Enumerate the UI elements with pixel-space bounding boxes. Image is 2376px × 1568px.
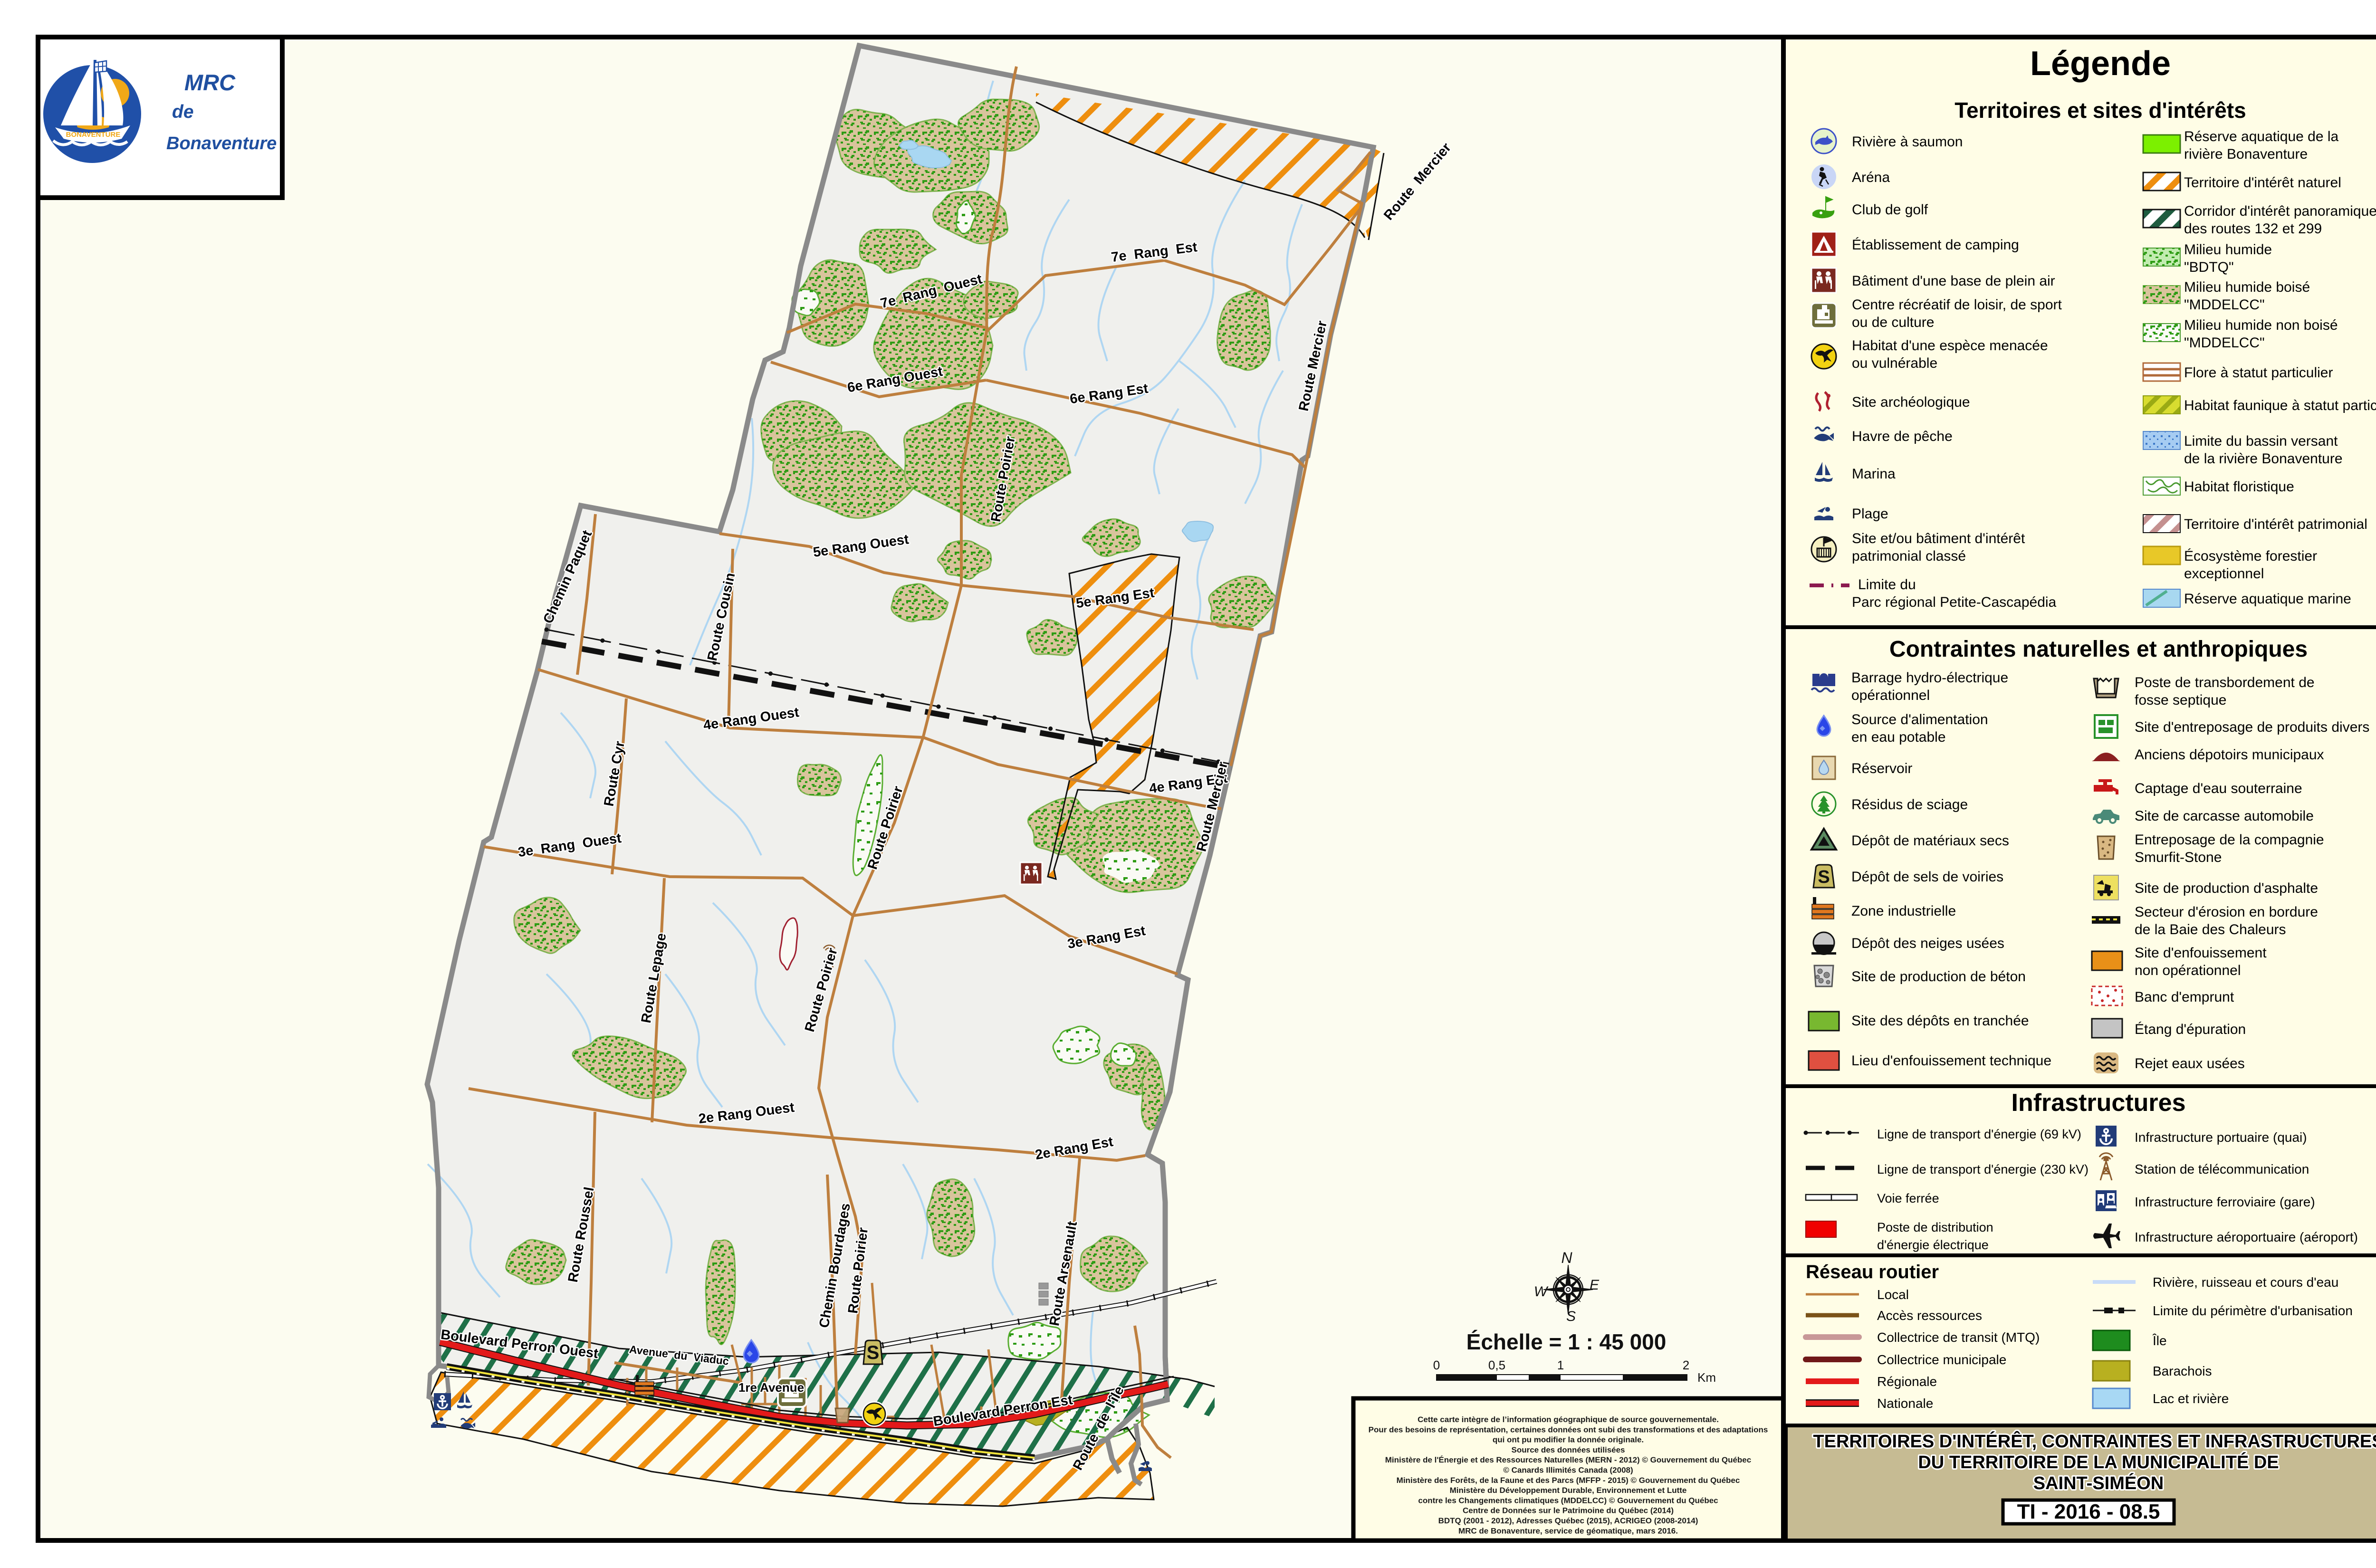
svg-text:Source des données utilisées: Source des données utilisées xyxy=(1511,1445,1625,1454)
svg-text:2: 2 xyxy=(1683,1358,1689,1372)
svg-text:d'énergie électrique: d'énergie électrique xyxy=(1877,1238,1989,1252)
svg-text:Marina: Marina xyxy=(1852,466,1896,482)
svg-text:Entreposage de la compagnie: Entreposage de la compagnie xyxy=(2135,832,2324,848)
svg-text:Havre de pêche: Havre de pêche xyxy=(1852,429,1953,444)
svg-text:exceptionnel: exceptionnel xyxy=(2184,566,2264,582)
svg-text:Infrastructure portuaire (quai: Infrastructure portuaire (quai) xyxy=(2135,1130,2307,1145)
svg-text:DU TERRITOIRE DE LA MUNICIPALI: DU TERRITOIRE DE LA MUNICIPALITÉ DE xyxy=(1918,1452,2279,1472)
svg-text:Lac et rivière: Lac et rivière xyxy=(2153,1391,2229,1406)
svg-text:Milieu humide non boisé: Milieu humide non boisé xyxy=(2184,317,2338,333)
svg-text:Réserve aquatique marine: Réserve aquatique marine xyxy=(2184,591,2351,607)
svg-text:Nationale: Nationale xyxy=(1877,1396,1933,1411)
svg-text:Ligne de transport d'énergie (: Ligne de transport d'énergie (69 kV) xyxy=(1877,1127,2081,1141)
svg-text:Source d'alimentation: Source d'alimentation xyxy=(1851,712,1988,727)
svg-text:Site de production d'asphalte: Site de production d'asphalte xyxy=(2135,880,2318,896)
svg-text:TI - 2016 - 08.5: TI - 2016 - 08.5 xyxy=(2017,1500,2160,1523)
svg-text:Anciens dépotoirs municipaux: Anciens dépotoirs municipaux xyxy=(2135,747,2324,763)
svg-text:Bonaventure: Bonaventure xyxy=(166,134,277,153)
svg-text:Site et/ou bâtiment d'intérêt: Site et/ou bâtiment d'intérêt xyxy=(1852,531,2025,546)
svg-text:Collectrice de transit (MTQ): Collectrice de transit (MTQ) xyxy=(1877,1330,2040,1345)
svg-text:Infrastructures: Infrastructures xyxy=(2012,1089,2186,1117)
svg-text:Résidus de sciage: Résidus de sciage xyxy=(1851,797,1968,813)
svg-text:Poste de transbordement de: Poste de transbordement de xyxy=(2135,675,2315,690)
svg-text:MRC de Bonaventure, service de: MRC de Bonaventure, service de géomatiqu… xyxy=(1458,1526,1678,1535)
svg-text:Parc régional Petite-Cascapédi: Parc régional Petite-Cascapédia xyxy=(1852,594,2057,610)
svg-text:BDTQ (2001 - 2012), Adresses Q: BDTQ (2001 - 2012), Adresses Québec (201… xyxy=(1438,1516,1698,1525)
svg-text:Poste de distribution: Poste de distribution xyxy=(1877,1220,1993,1234)
svg-text:Secteur d'érosion en bordure: Secteur d'érosion en bordure xyxy=(2135,904,2318,920)
svg-text:Écosystème forestier: Écosystème forestier xyxy=(2184,548,2317,564)
svg-text:patrimonial classé: patrimonial classé xyxy=(1852,548,1966,564)
svg-text:Aréna: Aréna xyxy=(1852,170,1890,185)
svg-text:S: S xyxy=(1818,867,1830,887)
svg-text:Échelle = 1 : 45 000: Échelle = 1 : 45 000 xyxy=(1466,1329,1667,1354)
svg-text:Barrage hydro-électrique: Barrage hydro-électrique xyxy=(1851,670,2008,686)
svg-text:1re Avenue: 1re Avenue xyxy=(738,1380,804,1395)
svg-text:1: 1 xyxy=(1557,1358,1564,1372)
svg-text:rivière Bonaventure: rivière Bonaventure xyxy=(2184,146,2308,162)
svg-text:ou vulnérable: ou vulnérable xyxy=(1852,355,1937,371)
svg-text:Smurfit-Stone: Smurfit-Stone xyxy=(2135,850,2222,865)
svg-text:Lieu d'enfouissement technique: Lieu d'enfouissement technique xyxy=(1851,1053,2051,1069)
svg-text:Collectrice municipale: Collectrice municipale xyxy=(1877,1352,2006,1367)
svg-text:S: S xyxy=(867,1342,880,1363)
svg-text:Rivière, ruisseau et cours d'e: Rivière, ruisseau et cours d'eau xyxy=(2153,1275,2338,1290)
svg-text:SAINT-SIMÉON: SAINT-SIMÉON xyxy=(2033,1472,2164,1493)
svg-text:Infrastructure aéroportuaire (: Infrastructure aéroportuaire (aéroport) xyxy=(2135,1230,2358,1244)
svg-text:Site d'enfouissement: Site d'enfouissement xyxy=(2135,945,2267,961)
svg-text:Cette carte intègre de l’infor: Cette carte intègre de l’information géo… xyxy=(1418,1415,1719,1424)
svg-text:E: E xyxy=(1590,1277,1600,1293)
svg-text:"BDTQ": "BDTQ" xyxy=(2184,259,2234,275)
svg-text:Habitat faunique à statut part: Habitat faunique à statut particulier xyxy=(2184,398,2376,413)
svg-text:© Canards Illimités Canada (20: © Canards Illimités Canada (2008) xyxy=(1503,1466,1633,1475)
svg-text:Barachois: Barachois xyxy=(2153,1364,2212,1378)
svg-text:Dépôt de matériaux secs: Dépôt de matériaux secs xyxy=(1851,833,2009,849)
svg-text:Légende: Légende xyxy=(2030,45,2171,83)
svg-text:opérationnel: opérationnel xyxy=(1851,688,1930,703)
svg-text:Captage d'eau souterraine: Captage d'eau souterraine xyxy=(2135,781,2302,796)
svg-text:de la rivière Bonaventure: de la rivière Bonaventure xyxy=(2184,451,2343,467)
svg-text:Ministère de l'Énergie et des: Ministère de l'Énergie et des Ressources… xyxy=(1385,1455,1751,1464)
svg-text:S: S xyxy=(1566,1309,1576,1324)
svg-text:Réseau routier: Réseau routier xyxy=(1806,1262,1939,1282)
svg-text:"MDDELCC": "MDDELCC" xyxy=(2184,335,2265,351)
svg-text:Dépôt des neiges usées: Dépôt des neiges usées xyxy=(1851,936,2004,951)
svg-text:non opérationnel: non opérationnel xyxy=(2135,963,2241,978)
svg-text:Territoire d'intérêt naturel: Territoire d'intérêt naturel xyxy=(2184,175,2341,191)
svg-text:Corridor d'intérêt panoramique: Corridor d'intérêt panoramique xyxy=(2184,203,2376,219)
svg-text:Régionale: Régionale xyxy=(1877,1374,1937,1389)
svg-text:Km: Km xyxy=(1697,1370,1716,1385)
svg-text:Habitat d'une espèce menacée: Habitat d'une espèce menacée xyxy=(1852,338,2048,354)
svg-text:des routes 132 et 299: des routes 132 et 299 xyxy=(2184,221,2322,237)
svg-text:Site de production de béton: Site de production de béton xyxy=(1851,969,2026,985)
svg-text:Site des dépôts en tranchée: Site des dépôts en tranchée xyxy=(1851,1013,2029,1029)
svg-text:Rejet eaux usées: Rejet eaux usées xyxy=(2135,1056,2245,1071)
svg-text:Site d'entreposage de produits: Site d'entreposage de produits divers xyxy=(2135,719,2369,735)
svg-text:Île: Île xyxy=(2152,1333,2167,1348)
svg-text:Ligne de transport d'énergie (: Ligne de transport d'énergie (230 kV) xyxy=(1877,1162,2089,1176)
svg-text:Dépôt de sels de voiries: Dépôt de sels de voiries xyxy=(1851,869,2003,885)
svg-text:Club de golf: Club de golf xyxy=(1852,202,1928,218)
svg-text:Limite du périmètre d'urbanisa: Limite du périmètre d'urbanisation xyxy=(2153,1303,2353,1318)
svg-text:Zone industrielle: Zone industrielle xyxy=(1851,903,1956,919)
svg-text:Banc d'emprunt: Banc d'emprunt xyxy=(2135,989,2234,1005)
svg-text:0: 0 xyxy=(1433,1358,1440,1372)
svg-text:Territoires et sites d'intérêt: Territoires et sites d'intérêts xyxy=(1954,98,2246,123)
svg-text:W: W xyxy=(1534,1284,1549,1300)
svg-text:Habitat floristique: Habitat floristique xyxy=(2184,479,2294,495)
svg-text:BONAVENTURE: BONAVENTURE xyxy=(66,131,121,139)
svg-text:Territoire d'intérêt patrimoni: Territoire d'intérêt patrimonial xyxy=(2184,516,2367,532)
svg-text:Local: Local xyxy=(1877,1287,1909,1302)
svg-text:Milieu humide: Milieu humide xyxy=(2184,242,2272,258)
svg-text:Pour des besoins de représenta: Pour des besoins de représentation, cert… xyxy=(1369,1425,1768,1434)
svg-text:N: N xyxy=(1561,1249,1572,1266)
svg-text:"MDDELCC": "MDDELCC" xyxy=(2184,297,2265,313)
svg-text:TERRITOIRES D'INTÉRÊT, CONTRAI: TERRITOIRES D'INTÉRÊT, CONTRAINTES ET IN… xyxy=(1813,1431,2376,1452)
svg-text:Infrastructure ferroviaire (ga: Infrastructure ferroviaire (gare) xyxy=(2135,1195,2315,1209)
svg-text:Étang d'épuration: Étang d'épuration xyxy=(2135,1022,2246,1037)
svg-text:Bâtiment d'une base de plein a: Bâtiment d'une base de plein air xyxy=(1852,273,2055,289)
svg-text:qui ont pu modifier la donnée: qui ont pu modifier la donnée originale. xyxy=(1493,1435,1644,1444)
svg-text:Milieu humide boisé: Milieu humide boisé xyxy=(2184,279,2310,295)
svg-text:de la Baie des Chaleurs: de la Baie des Chaleurs xyxy=(2135,922,2286,937)
svg-text:Réservoir: Réservoir xyxy=(1851,761,1912,776)
svg-text:Accès ressources: Accès ressources xyxy=(1877,1308,1982,1323)
svg-text:0,5: 0,5 xyxy=(1488,1358,1505,1372)
svg-text:Limite du bassin versant: Limite du bassin versant xyxy=(2184,433,2338,449)
svg-text:ou de culture: ou de culture xyxy=(1852,315,1934,330)
svg-text:de: de xyxy=(172,102,194,122)
svg-text:fosse septique: fosse septique xyxy=(2135,692,2226,708)
svg-text:Voie ferrée: Voie ferrée xyxy=(1877,1191,1939,1205)
svg-text:Plage: Plage xyxy=(1852,506,1888,522)
svg-text:Réserve aquatique de la: Réserve aquatique de la xyxy=(2184,129,2339,144)
svg-text:Établissement de camping: Établissement de camping xyxy=(1852,237,2019,253)
svg-text:Limite du: Limite du xyxy=(1858,577,1916,593)
svg-text:Station de télécommunication: Station de télécommunication xyxy=(2135,1162,2309,1176)
svg-text:Flore à statut particulier: Flore à statut particulier xyxy=(2184,365,2333,381)
svg-text:Site de carcasse automobile: Site de carcasse automobile xyxy=(2135,808,2314,824)
svg-text:Site archéologique: Site archéologique xyxy=(1852,394,1970,410)
svg-text:Rivière à saumon: Rivière à saumon xyxy=(1852,134,1963,150)
svg-text:contre les Changements climati: contre les Changements climatiques (MDDE… xyxy=(1418,1496,1718,1505)
svg-text:Ministère du Développement Dur: Ministère du Développement Durable, Envi… xyxy=(1450,1486,1687,1495)
svg-text:MRC: MRC xyxy=(184,70,236,95)
svg-text:Contraintes naturelles et anth: Contraintes naturelles et anthropiques xyxy=(1889,637,2308,662)
svg-text:Centre récréatif de loisir, de: Centre récréatif de loisir, de sport xyxy=(1852,297,2062,313)
svg-text:en eau potable: en eau potable xyxy=(1851,729,1946,745)
svg-text:Ministère des Forêts, de la Fa: Ministère des Forêts, de la Faune et des… xyxy=(1397,1476,1740,1485)
svg-text:Centre de Données sur le Patri: Centre de Données sur le Patrimoine du Q… xyxy=(1463,1506,1674,1515)
